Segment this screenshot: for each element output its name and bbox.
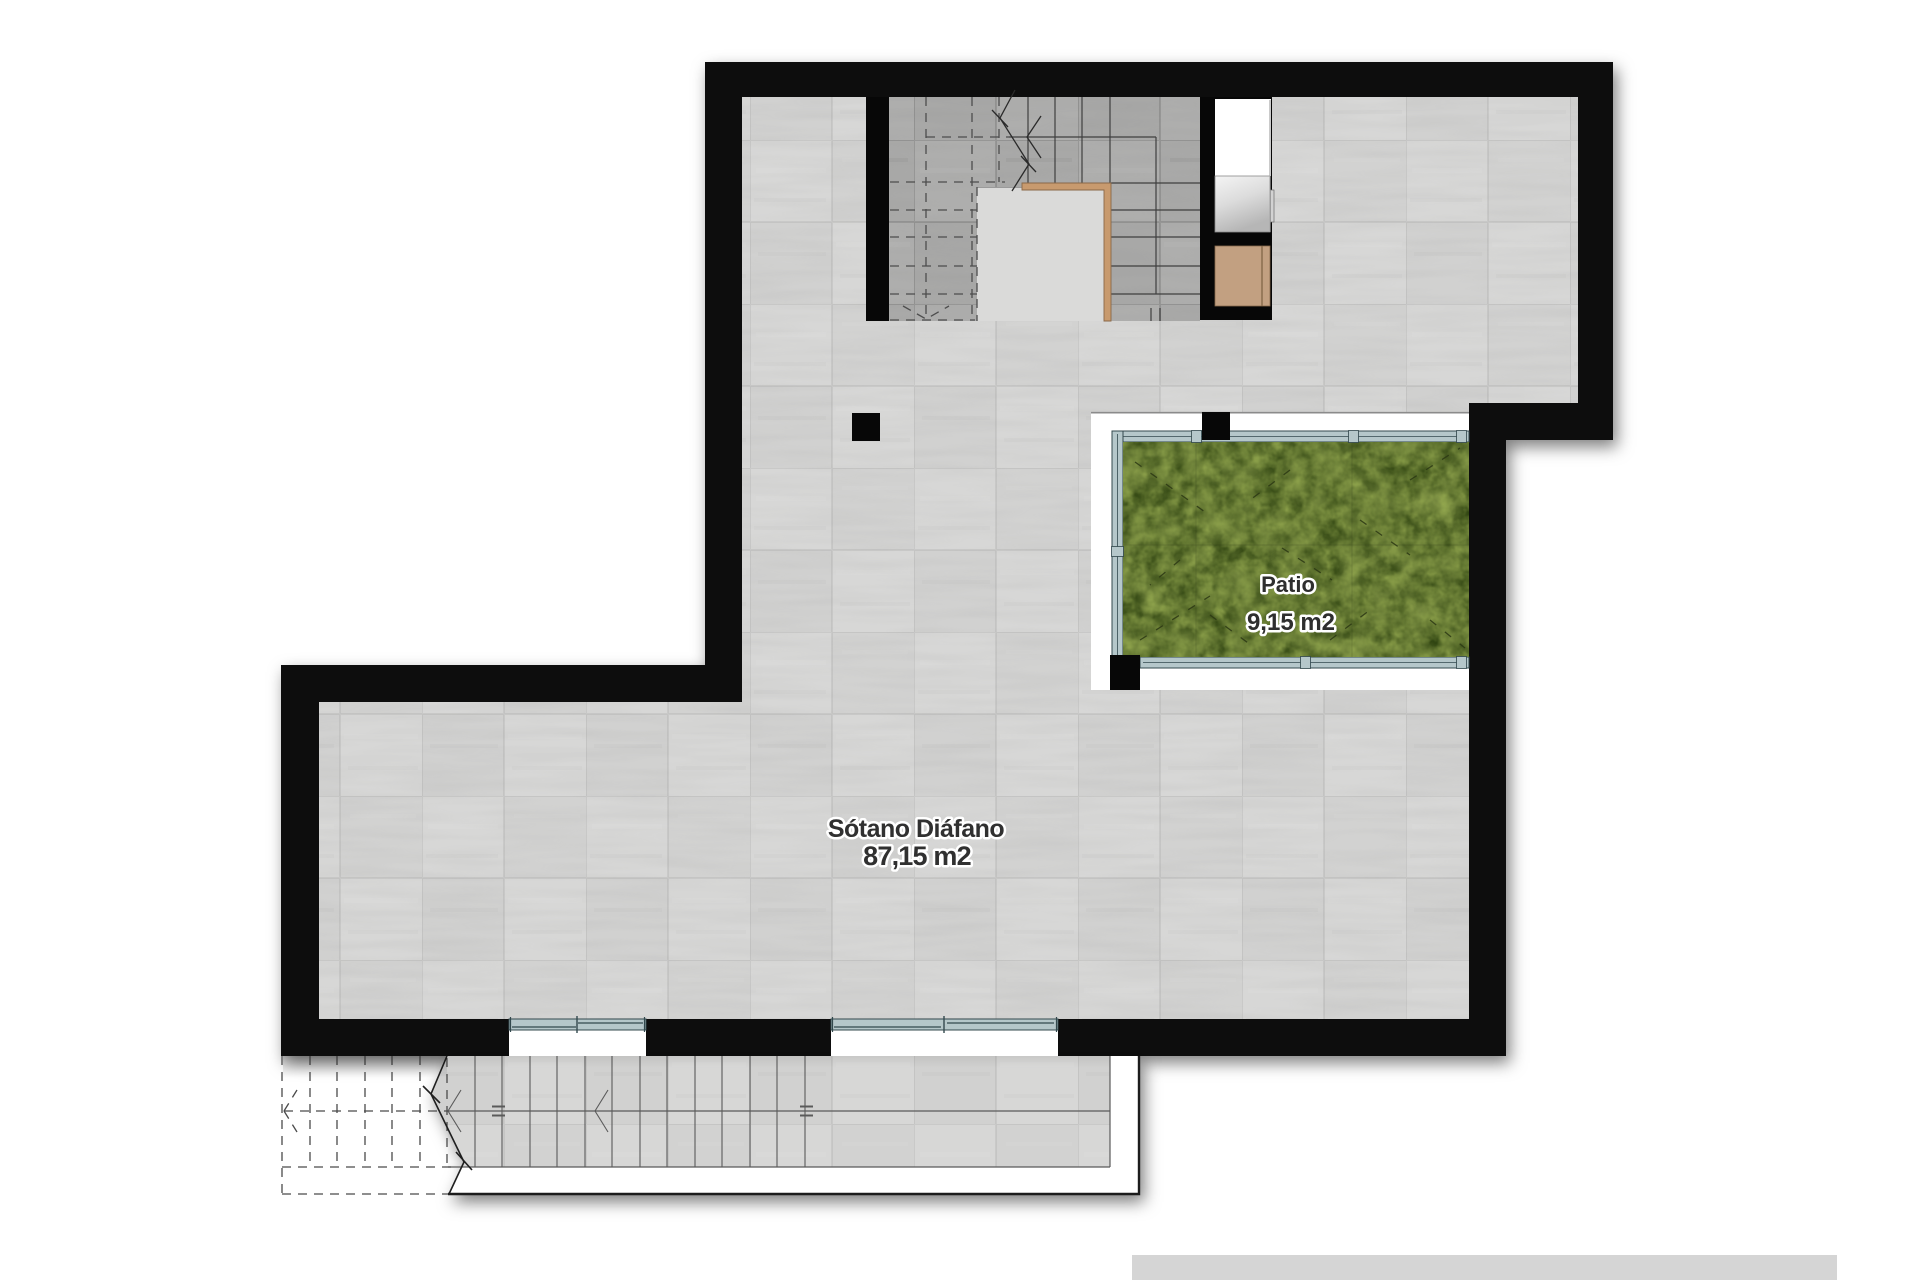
svg-text:Sótano Diáfano: Sótano Diáfano [828, 815, 1005, 843]
svg-text:87,15 m2: 87,15 m2 [863, 841, 971, 871]
svg-text:Patio: Patio [1261, 572, 1315, 597]
svg-text:9,15 m2: 9,15 m2 [1247, 609, 1335, 636]
